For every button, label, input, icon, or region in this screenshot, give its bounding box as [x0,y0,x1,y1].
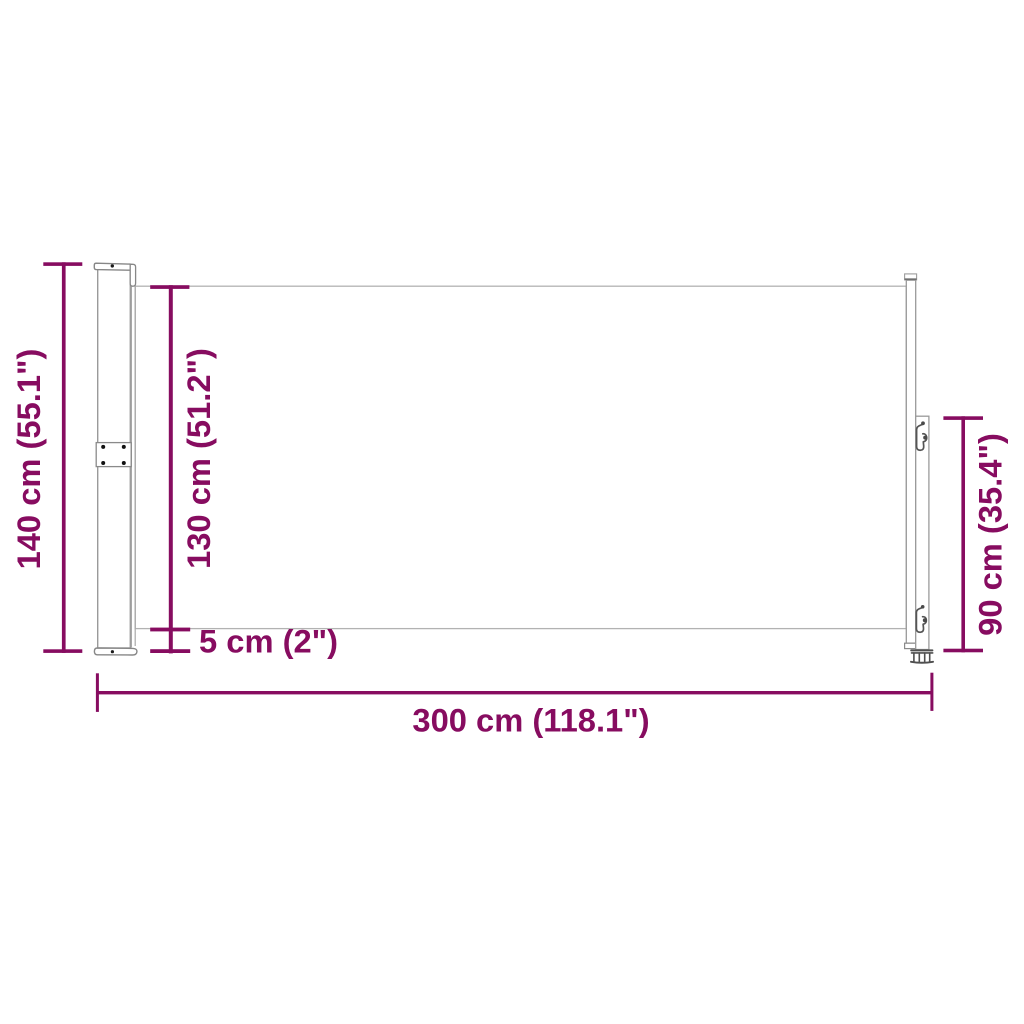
svg-text:5 cm (2"): 5 cm (2") [199,622,338,659]
svg-text:140 cm (55.1"): 140 cm (55.1") [10,349,47,570]
svg-text:90 cm (35.4"): 90 cm (35.4") [972,433,1009,636]
svg-text:300 cm (118.1"): 300 cm (118.1") [412,702,649,739]
svg-text:130 cm (51.2"): 130 cm (51.2") [180,348,217,569]
